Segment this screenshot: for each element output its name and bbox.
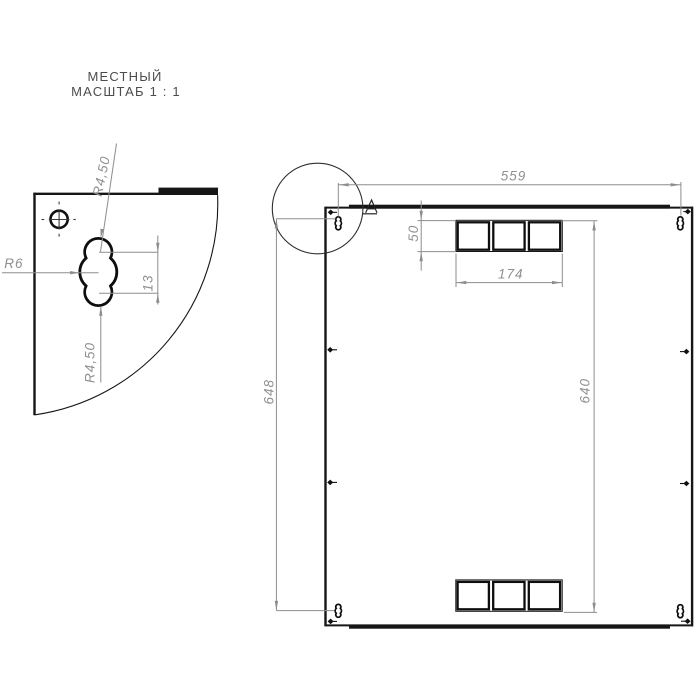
svg-text:13: 13	[141, 274, 156, 291]
svg-text:R6: R6	[4, 256, 23, 271]
svg-text:МАСШТАБ 1 : 1: МАСШТАБ 1 : 1	[71, 84, 181, 99]
svg-text:R4,50: R4,50	[83, 342, 98, 383]
svg-text:648: 648	[262, 379, 277, 405]
svg-text:640: 640	[578, 378, 593, 404]
svg-text:559: 559	[501, 169, 527, 184]
svg-text:50: 50	[406, 225, 421, 242]
svg-text:174: 174	[498, 266, 524, 281]
svg-text:МЕСТНЫЙ: МЕСТНЫЙ	[87, 69, 162, 84]
